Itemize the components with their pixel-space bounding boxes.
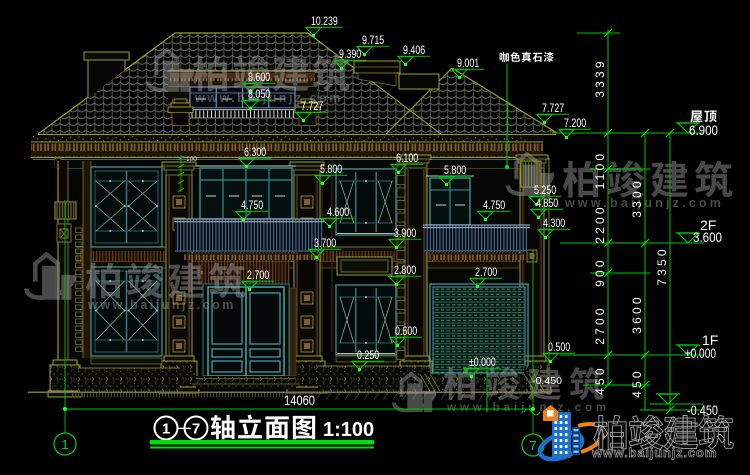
svg-text:±0.000: ±0.000 bbox=[685, 345, 716, 361]
svg-text:www.baijunjz.com: www.baijunjz.com bbox=[446, 402, 610, 414]
svg-text:9.406: 9.406 bbox=[403, 45, 425, 57]
svg-text:www.baijunjz.com: www.baijunjz.com bbox=[564, 196, 724, 210]
svg-text:7: 7 bbox=[192, 421, 200, 438]
svg-text:7.200: 7.200 bbox=[564, 118, 586, 130]
svg-text:7.727: 7.727 bbox=[301, 101, 323, 113]
svg-text:www.baijunjz.com: www.baijunjz.com bbox=[591, 445, 717, 460]
svg-text:6.900: 6.900 bbox=[689, 122, 718, 138]
svg-text:6.300: 6.300 bbox=[244, 147, 266, 159]
svg-text:4.750: 4.750 bbox=[241, 200, 263, 212]
svg-text:±0.000: ±0.000 bbox=[469, 357, 496, 369]
svg-text:2.800: 2.800 bbox=[394, 265, 416, 277]
svg-text:1: 1 bbox=[61, 437, 68, 452]
svg-text:3.600: 3.600 bbox=[693, 229, 722, 245]
svg-text:-0.450: -0.450 bbox=[532, 375, 562, 387]
svg-text:6.100: 6.100 bbox=[396, 153, 418, 165]
svg-text:1100: 1100 bbox=[593, 151, 607, 190]
svg-text:9.001: 9.001 bbox=[457, 58, 479, 70]
svg-text:450: 450 bbox=[593, 365, 607, 395]
svg-text:www.baijunjz.com: www.baijunjz.com bbox=[87, 298, 236, 312]
svg-text:1: 1 bbox=[162, 421, 170, 438]
svg-text:3600: 3600 bbox=[630, 294, 644, 334]
svg-text:0.600: 0.600 bbox=[395, 326, 417, 338]
svg-text:7.727: 7.727 bbox=[542, 103, 564, 115]
svg-text:14060: 14060 bbox=[284, 392, 315, 408]
svg-text:100: 100 bbox=[186, 156, 197, 163]
svg-text:3.900: 3.900 bbox=[394, 228, 416, 240]
svg-text:10.239: 10.239 bbox=[311, 16, 338, 28]
svg-text:2.700: 2.700 bbox=[475, 267, 497, 279]
svg-text:5.250: 5.250 bbox=[534, 185, 556, 197]
svg-text:8.600: 8.600 bbox=[248, 72, 270, 84]
svg-text:5.800: 5.800 bbox=[320, 164, 342, 176]
svg-text:4.600: 4.600 bbox=[327, 207, 349, 219]
svg-text:0.500: 0.500 bbox=[548, 342, 570, 354]
svg-text:4.300: 4.300 bbox=[543, 218, 565, 230]
svg-text:7350: 7350 bbox=[655, 246, 669, 286]
svg-text:4.750: 4.750 bbox=[483, 200, 505, 212]
svg-text:3300: 3300 bbox=[630, 178, 644, 218]
svg-text:2700: 2700 bbox=[593, 305, 607, 345]
svg-text:2200: 2200 bbox=[593, 204, 607, 244]
svg-text:3.700: 3.700 bbox=[314, 238, 336, 250]
svg-text:9.390: 9.390 bbox=[339, 49, 361, 61]
svg-text:7: 7 bbox=[529, 438, 536, 453]
svg-text:1:100: 1:100 bbox=[323, 419, 374, 441]
svg-text:4.850: 4.850 bbox=[536, 198, 558, 210]
svg-text:900: 900 bbox=[593, 257, 607, 287]
svg-text:2.700: 2.700 bbox=[247, 270, 269, 282]
svg-text:3339: 3339 bbox=[593, 58, 607, 98]
svg-text:-0.450: -0.450 bbox=[687, 402, 718, 418]
svg-text:0.250: 0.250 bbox=[357, 350, 379, 362]
svg-text:450: 450 bbox=[630, 368, 644, 398]
svg-text:9.715: 9.715 bbox=[362, 35, 384, 47]
svg-text:5.800: 5.800 bbox=[444, 165, 466, 177]
svg-text:8.050: 8.050 bbox=[248, 89, 270, 101]
